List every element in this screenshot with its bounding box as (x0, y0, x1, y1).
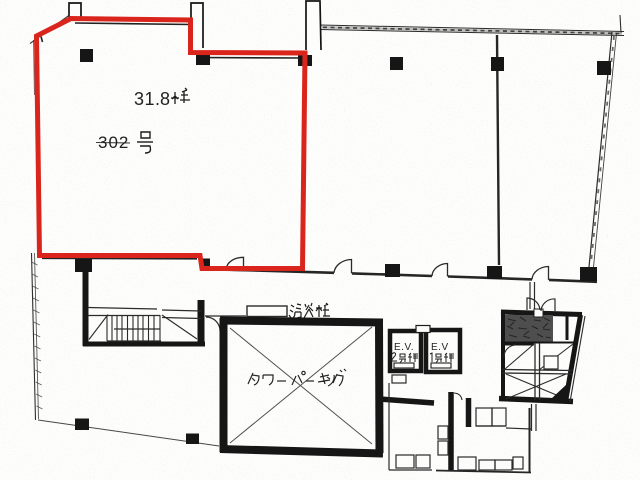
svg-text:31.: 31. (134, 89, 161, 109)
svg-text:E.V.: E.V. (394, 342, 414, 353)
svg-text:8: 8 (160, 89, 170, 109)
svg-text:E.V: E.V (431, 342, 449, 353)
